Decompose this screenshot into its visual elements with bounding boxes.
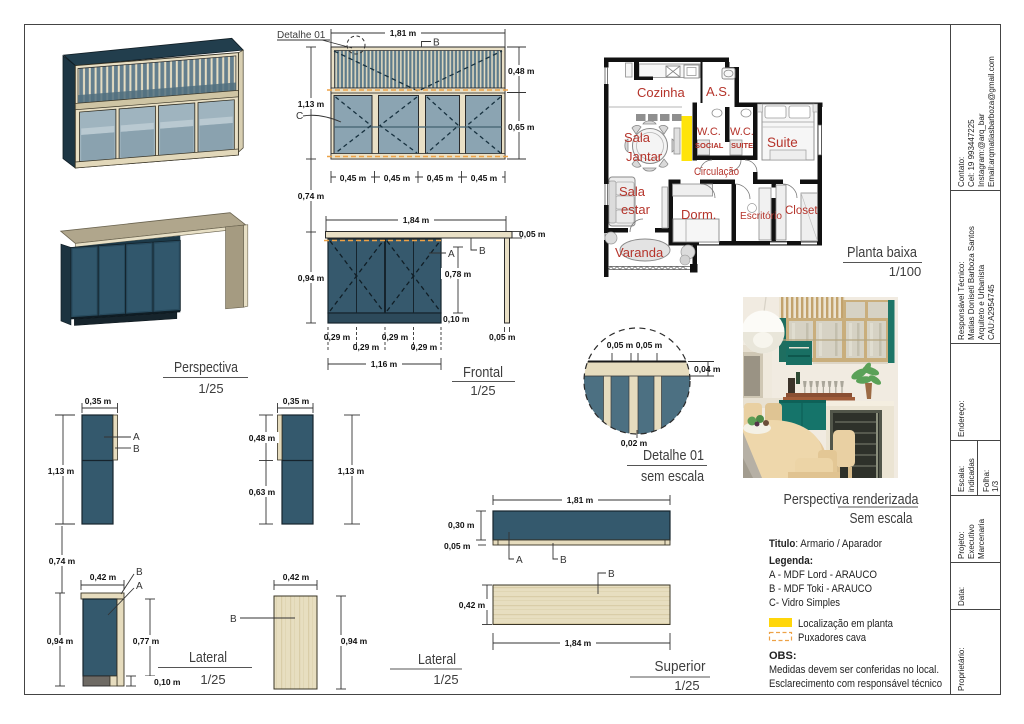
svg-text:B: B	[608, 569, 615, 580]
svg-text:Cel: 19 993447225: Cel: 19 993447225	[967, 119, 976, 187]
svg-text:C- Vidro Simples: C- Vidro Simples	[769, 597, 840, 609]
svg-text:0,94 m: 0,94 m	[298, 273, 325, 283]
svg-text:1,81 m: 1,81 m	[390, 28, 417, 38]
svg-text:0,48 m: 0,48 m	[508, 66, 535, 76]
svg-text:Closet: Closet	[785, 205, 818, 217]
svg-text:Perspectiva renderizada: Perspectiva renderizada	[784, 491, 920, 508]
svg-text:1/25: 1/25	[470, 383, 495, 398]
svg-text:0,30 m: 0,30 m	[448, 520, 475, 530]
svg-text:0,45 m: 0,45 m	[384, 173, 411, 183]
svg-text:Responsável Técnico:: Responsável Técnico:	[957, 261, 966, 340]
svg-text:0,42 m: 0,42 m	[283, 572, 310, 582]
svg-text:1,13 m: 1,13 m	[298, 99, 325, 109]
svg-text:0,35 m: 0,35 m	[85, 396, 112, 406]
svg-text:Instagram:@arq_bar: Instagram:@arq_bar	[977, 113, 986, 187]
svg-text:0,29 m: 0,29 m	[411, 342, 438, 352]
svg-text:OBS:: OBS:	[769, 650, 797, 662]
svg-text:B - MDF Toki - ARAUCO: B - MDF Toki - ARAUCO	[769, 583, 872, 595]
svg-text:Escala:: Escala:	[957, 466, 966, 492]
svg-text:0,74 m: 0,74 m	[49, 556, 76, 566]
svg-text:A: A	[516, 555, 523, 566]
svg-text:B: B	[230, 614, 237, 625]
svg-text:SOCIAL: SOCIAL	[695, 141, 724, 150]
svg-text:A: A	[133, 432, 140, 443]
svg-text:A: A	[448, 249, 455, 260]
svg-text:W.C.: W.C.	[697, 126, 721, 138]
svg-text:0,48 m: 0,48 m	[249, 433, 276, 443]
svg-text:0,42 m: 0,42 m	[90, 572, 117, 582]
svg-text:0,42 m: 0,42 m	[459, 600, 486, 610]
svg-text:B: B	[433, 38, 440, 49]
svg-text:Folha:: Folha:	[982, 470, 991, 492]
svg-text:1,13 m: 1,13 m	[48, 466, 75, 476]
svg-text:Arquiteto e Urbanista: Arquiteto e Urbanista	[977, 264, 986, 340]
svg-text:indicadas: indicadas	[967, 458, 976, 492]
svg-text:0,05 m: 0,05 m	[444, 541, 471, 551]
svg-text:B: B	[136, 567, 143, 578]
svg-text:1/25: 1/25	[433, 672, 458, 687]
svg-text:Jantar: Jantar	[626, 149, 663, 164]
svg-text:Sem escala: Sem escala	[850, 510, 914, 527]
svg-text:0,29 m: 0,29 m	[382, 332, 409, 342]
svg-text:Contato:: Contato:	[957, 157, 966, 187]
svg-text:B: B	[133, 444, 140, 455]
svg-text:Escritório: Escritório	[740, 211, 782, 222]
svg-text:Legenda:: Legenda:	[769, 555, 813, 567]
svg-text:1,81 m: 1,81 m	[567, 495, 594, 505]
svg-text:1/100: 1/100	[889, 264, 922, 279]
svg-text:Detalhe 01: Detalhe 01	[643, 447, 704, 464]
svg-text:estar: estar	[621, 202, 651, 217]
svg-text:0,29 m: 0,29 m	[324, 332, 351, 342]
svg-text:0,78 m: 0,78 m	[445, 269, 472, 279]
svg-text:Titulo: Armario / Aparador: Titulo: Armario / Aparador	[769, 538, 882, 550]
svg-text:Lateral: Lateral	[189, 649, 227, 666]
svg-text:Lateral: Lateral	[418, 651, 456, 668]
svg-text:0,45 m: 0,45 m	[427, 173, 454, 183]
svg-text:Projeto:: Projeto:	[957, 531, 966, 559]
svg-text:0,05 m: 0,05 m	[636, 340, 663, 350]
svg-text:0,05 m: 0,05 m	[489, 332, 516, 342]
svg-text:0,63 m: 0,63 m	[249, 487, 276, 497]
svg-text:0,10 m: 0,10 m	[443, 314, 470, 324]
svg-text:1/25: 1/25	[674, 678, 699, 693]
svg-text:Circulação: Circulação	[694, 166, 739, 178]
svg-text:0,04 m: 0,04 m	[694, 364, 721, 374]
svg-text:Sala: Sala	[619, 184, 646, 199]
svg-text:0,05 m: 0,05 m	[607, 340, 634, 350]
svg-text:0,77 m: 0,77 m	[133, 636, 160, 646]
svg-text:0,10 m: 0,10 m	[154, 677, 181, 687]
svg-text:Data:: Data:	[957, 587, 966, 606]
svg-text:C: C	[296, 111, 303, 122]
svg-text:Matias Doniseti Barboza Santos: Matias Doniseti Barboza Santos	[967, 226, 976, 340]
svg-text:sem escala: sem escala	[641, 468, 705, 485]
svg-text:Executivo: Executivo	[967, 524, 976, 559]
svg-text:Localização em planta: Localização em planta	[798, 618, 894, 630]
svg-text:1/25: 1/25	[198, 381, 223, 396]
svg-text:0,65 m: 0,65 m	[508, 122, 535, 132]
svg-text:SUITE: SUITE	[731, 141, 753, 150]
svg-text:Planta baixa: Planta baixa	[847, 244, 918, 261]
svg-text:Varanda: Varanda	[615, 245, 664, 260]
svg-text:Perspectiva: Perspectiva	[174, 359, 239, 376]
svg-text:A - MDF Lord - ARAUCO: A - MDF Lord - ARAUCO	[769, 569, 877, 581]
svg-text:1/25: 1/25	[200, 672, 225, 687]
svg-text:B: B	[560, 555, 567, 566]
svg-text:Cozinha: Cozinha	[637, 85, 685, 100]
svg-text:Detalhe 01: Detalhe 01	[277, 30, 326, 41]
svg-text:0,94 m: 0,94 m	[341, 636, 368, 646]
svg-text:A: A	[136, 581, 143, 592]
svg-text:0,35 m: 0,35 m	[283, 396, 310, 406]
svg-text:1/3: 1/3	[991, 480, 1000, 492]
svg-text:Superior: Superior	[655, 658, 706, 675]
svg-text:Esclarecimento com responsável: Esclarecimento com responsável técnico	[769, 678, 942, 690]
svg-text:0,29 m: 0,29 m	[353, 342, 380, 352]
svg-text:1,84 m: 1,84 m	[565, 638, 592, 648]
svg-text:Dorm.: Dorm.	[681, 207, 716, 222]
svg-text:1,13 m: 1,13 m	[338, 466, 365, 476]
svg-text:W.C.: W.C.	[730, 126, 754, 138]
svg-text:1,16 m: 1,16 m	[371, 359, 398, 369]
svg-text:1,84 m: 1,84 m	[403, 215, 430, 225]
svg-text:0,94 m: 0,94 m	[47, 636, 74, 646]
svg-text:Suite: Suite	[767, 135, 798, 150]
svg-text:0,45 m: 0,45 m	[471, 173, 498, 183]
svg-text:A.S.: A.S.	[706, 84, 731, 99]
svg-text:Marcenaria: Marcenaria	[977, 518, 986, 559]
svg-text:Sala: Sala	[624, 130, 651, 145]
svg-text:Proprietário:: Proprietário:	[957, 647, 966, 691]
svg-text:0,74 m: 0,74 m	[298, 191, 325, 201]
svg-text:Email:arqmatiasbarboza@gmail.c: Email:arqmatiasbarboza@gmail.com	[987, 56, 996, 187]
svg-text:Endereço:: Endereço:	[957, 401, 966, 437]
svg-text:B: B	[479, 246, 486, 257]
svg-text:Medidas devem ser conferidas n: Medidas devem ser conferidas no local.	[769, 664, 939, 676]
svg-text:Puxadores cava: Puxadores cava	[798, 632, 867, 644]
svg-text:Frontal: Frontal	[463, 364, 503, 381]
svg-text:0,45 m: 0,45 m	[340, 173, 367, 183]
svg-text:0,05 m: 0,05 m	[519, 229, 546, 239]
svg-text:CAU:A2954745: CAU:A2954745	[987, 284, 996, 340]
